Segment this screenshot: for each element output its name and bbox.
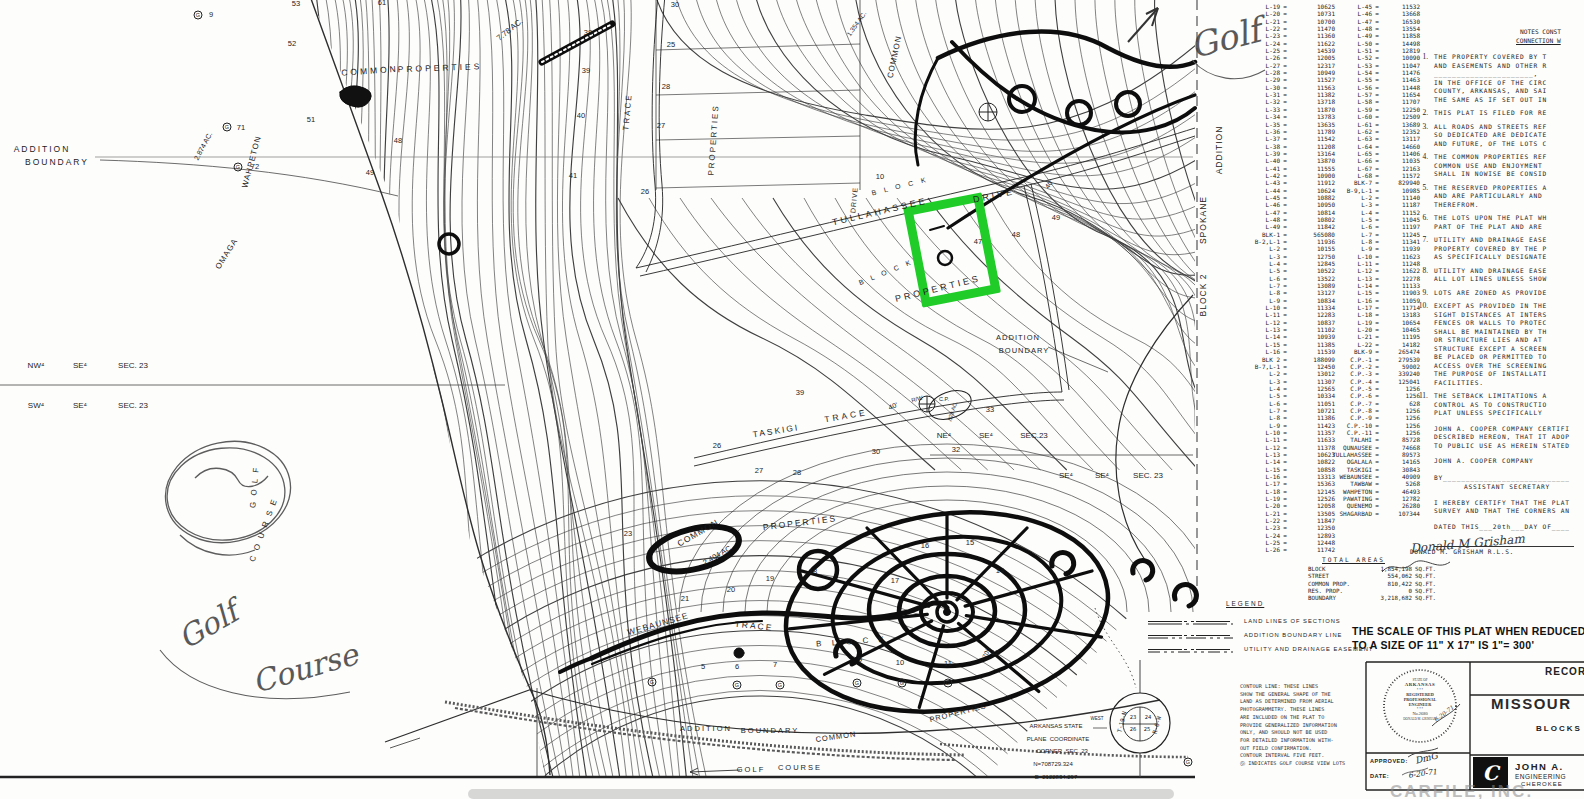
lot-id: QUENEMO (1326, 502, 1372, 509)
total-value: 0 (1360, 588, 1412, 595)
lot-id: L-25 (1236, 47, 1280, 54)
lot-area-value: 12893 (1290, 532, 1335, 539)
equals-sign: = (1280, 282, 1290, 289)
equals-sign: = (1372, 25, 1382, 32)
lot-id: L-60 (1326, 113, 1372, 120)
lot-id: BLK 2 (1236, 356, 1280, 363)
map-label: ADDITION (1215, 126, 1224, 175)
table-row: L-27 = 12317 (1236, 62, 1336, 69)
note-number: 4. (1404, 153, 1434, 179)
firm-division: ENGINEERING (1515, 773, 1566, 780)
lot-id: L-58 (1326, 98, 1372, 105)
equals-sign: = (1280, 223, 1290, 230)
map-label: 47 (974, 238, 982, 246)
lot-id: L-13 (1236, 326, 1280, 333)
surveyor-certification: I HEREBY CERTIFY THAT THE PLAT SURVEY AN… (1434, 499, 1584, 516)
lot-id: C.P.-7 (1326, 400, 1372, 407)
lot-id: L-5 (1326, 216, 1372, 223)
equals-sign: = (1372, 407, 1382, 414)
table-row: L-23 = 11360 (1236, 32, 1336, 39)
lot-id: L-21 (1236, 510, 1280, 517)
note-item: 1. THE PROPERTY COVERED BY T AND EASEMEN… (1404, 53, 1584, 104)
addition-boundary-lines (100, 0, 1193, 775)
table-row: L-21 = 13505 (1236, 510, 1336, 517)
note-number: 10. (1404, 302, 1434, 387)
lot-id: QUNAUSEE (1326, 444, 1372, 451)
map-label: 28 (662, 83, 670, 91)
equals-sign: = (1372, 458, 1382, 465)
lot-id: L-26 (1236, 54, 1280, 61)
lot-id: L-52 (1326, 54, 1372, 61)
equals-sign: = (1372, 143, 1382, 150)
lot-id: L-34 (1236, 113, 1280, 120)
equals-sign: = (1280, 510, 1290, 517)
equals-sign: = (1372, 106, 1382, 113)
table-row: BLK 2 = 188099 (1236, 356, 1336, 363)
equals-sign: = (1372, 495, 1382, 502)
map-label: 49 (1052, 214, 1060, 222)
equals-sign: = (1280, 150, 1290, 157)
total-value: 1,854,198 (1360, 566, 1412, 573)
lot-id: L-8 (1326, 238, 1372, 245)
lot-id: L-55 (1326, 76, 1372, 83)
lot-id: BLK-9 (1326, 348, 1372, 355)
table-row: L-44 = 10624 (1236, 187, 1336, 194)
map-label: 49 (366, 169, 374, 177)
lot-id: OGALALA (1326, 458, 1372, 465)
note-text: THIS PLAT IS FILED FOR RE (1434, 109, 1584, 118)
equals-sign: = (1280, 451, 1290, 458)
lot-id: L-9 (1326, 245, 1372, 252)
scan-watermark: CARFILE, INC. (1390, 782, 1533, 799)
map-label: E=2122834.297 (1035, 774, 1078, 780)
lot-id: L-44 (1236, 187, 1280, 194)
lot-id: L-35 (1236, 121, 1280, 128)
lot-id: L-3 (1326, 201, 1372, 208)
equals-sign: = (1372, 326, 1382, 333)
table-row: L-20 = 10731 (1236, 10, 1336, 17)
lot-id: L-7 (1236, 282, 1280, 289)
scale-note-line2: TO A SIZE OF 11" X 17" IS 1"= 300' (1352, 638, 1584, 652)
table-row: L-9 = 10834 (1236, 297, 1336, 304)
table-row: L-7 = 13089 (1236, 282, 1336, 289)
note-text: THE COMMON PROPERTIES REF COMMON USE AND… (1434, 153, 1584, 179)
equals-sign: = (1372, 260, 1382, 267)
lot-id: L-20 (1326, 326, 1372, 333)
map-label: 25 (1144, 727, 1151, 733)
table-row: L-12 = 10837 (1236, 319, 1336, 326)
lot-area-value: 11847 (1290, 517, 1335, 524)
legend-row: UTILITY AND DRAINAGE EASEMENT (1148, 642, 1378, 656)
equals-sign: = (1372, 333, 1382, 340)
equals-sign: = (1280, 135, 1290, 142)
equals-sign: = (1280, 480, 1290, 487)
lot-id: L-26 (1236, 546, 1280, 553)
equals-sign: = (1280, 502, 1290, 509)
equals-sign: = (1372, 451, 1382, 458)
equals-sign: = (1372, 10, 1382, 17)
lot-id: L-48 (1236, 216, 1280, 223)
note-text: THE PROPERTY COVERED BY T AND EASEMENTS … (1434, 53, 1584, 104)
lot-id: L-31 (1236, 91, 1280, 98)
legend-line-sample (1148, 635, 1236, 636)
golf-view-lot-icon: G (234, 163, 243, 172)
table-row: L-21 = 10700 (1236, 18, 1336, 25)
equals-sign: = (1372, 172, 1382, 179)
by-signature-line: BY____________________________ (1434, 474, 1584, 483)
note-number: 7. (1404, 236, 1434, 262)
table-row: L-23 = 12350 (1236, 524, 1336, 531)
table-row: L-41 = 11555 (1236, 165, 1336, 172)
lot-id: L-63 (1326, 135, 1372, 142)
legend: LEGEND LAND LINES OF SECTIONS ADDITION B… (1148, 600, 1378, 656)
table-row: L-33 = 11870 (1236, 106, 1336, 113)
notes-heading: NOTES CONST (1520, 28, 1584, 37)
company-certification: JOHN A. COOPER COMPANY CERTIFI DESCRIBED… (1434, 425, 1584, 451)
lot-id: L-36 (1236, 128, 1280, 135)
equals-sign: = (1280, 84, 1290, 91)
note-number: 8. (1404, 267, 1434, 284)
equals-sign: = (1280, 187, 1290, 194)
map-label: 25 (667, 41, 675, 49)
map-label: 51 (307, 116, 315, 124)
lot-id: TAWBAW (1326, 480, 1372, 487)
equals-sign: = (1372, 179, 1382, 186)
lot-id: L-23 (1236, 32, 1280, 39)
equals-sign: = (1372, 267, 1382, 274)
equals-sign: = (1372, 502, 1382, 509)
equals-sign: = (1280, 253, 1290, 260)
table-row: L-25 = 14539 (1236, 47, 1336, 54)
table-row: L-2 = 13012 (1236, 370, 1336, 377)
equals-sign: = (1280, 216, 1290, 223)
lot-id: L-4 (1236, 385, 1280, 392)
total-unit: SQ.FT. (1412, 573, 1441, 580)
equals-sign: = (1280, 165, 1290, 172)
lot-id: L-10 (1236, 429, 1280, 436)
lot-id: SHAGARBAD (1326, 510, 1372, 517)
lot-id: L-19 (1326, 319, 1372, 326)
firm-name: JOHN A. (1515, 761, 1564, 772)
equals-sign: = (1372, 209, 1382, 216)
legend-label: LAND LINES OF SECTIONS (1244, 618, 1341, 624)
table-row: L-15 = 11385 (1236, 341, 1336, 348)
table-row: L-26 = 12005 (1236, 54, 1336, 61)
lot-id: L-32 (1236, 98, 1280, 105)
map-label: WEST (1091, 717, 1104, 722)
total-label: COMMON PROP. (1308, 581, 1360, 588)
map-label: NW⁴ (28, 362, 45, 370)
table-row: B-2,L-1 = 11936 (1236, 238, 1336, 245)
equals-sign: = (1372, 223, 1382, 230)
equals-sign: = (1372, 348, 1382, 355)
map-label: 11 (944, 660, 952, 668)
lot-id: C.P.-3 (1326, 370, 1372, 377)
table-row: L-9 = 11423 (1236, 422, 1336, 429)
table-row: L-11 = 12283 (1236, 311, 1336, 318)
equals-sign: = (1280, 172, 1290, 179)
equals-sign: = (1280, 121, 1290, 128)
lot-id: L-13 (1236, 451, 1280, 458)
table-row: L-40 = 13870 (1236, 157, 1336, 164)
table-row: L-38 = 11208 (1236, 143, 1336, 150)
table-row: L-20 = 12058 (1236, 502, 1336, 509)
notes-subheading: CONNECTION W (1516, 37, 1584, 46)
equals-sign: = (1372, 392, 1382, 399)
lot-id: L-20 (1236, 502, 1280, 509)
lot-id: L-16 (1326, 297, 1372, 304)
equals-sign: = (1280, 231, 1290, 238)
map-label: N=708729.324 (1033, 761, 1073, 767)
table-row: L-49 = 11842 (1236, 223, 1336, 230)
golf-view-lot-icon: G (898, 679, 907, 688)
lot-id: L-67 (1326, 165, 1372, 172)
table-row: L-42 = 10900 (1236, 172, 1336, 179)
lot-id: L-29 (1236, 76, 1280, 83)
lot-id: L-10 (1326, 253, 1372, 260)
lot-id: L-2 (1236, 370, 1280, 377)
lot-id: L-50 (1326, 40, 1372, 47)
equals-sign: = (1280, 113, 1290, 120)
lot-id: B-2,L-1 (1236, 238, 1280, 245)
lot-id: TALAHI (1326, 436, 1372, 443)
equals-sign: = (1372, 98, 1382, 105)
total-unit: SQ.FT. (1412, 566, 1441, 573)
total-areas-row: BLOCK 1,854,198 SQ.FT. (1308, 566, 1442, 573)
map-label: 9 (858, 656, 862, 664)
equals-sign: = (1372, 113, 1382, 120)
equals-sign: = (1372, 245, 1382, 252)
lot-id: L-22 (1326, 341, 1372, 348)
note-item: 6. THE LOTS UPON THE PLAT WH PART OF THE… (1404, 214, 1584, 231)
lot-id: L-5 (1236, 392, 1280, 399)
lot-id: L-14 (1236, 333, 1280, 340)
table-row: L-47 = 10814 (1236, 209, 1336, 216)
equals-sign: = (1372, 121, 1382, 128)
lot-id: L-57 (1326, 91, 1372, 98)
table-row: L-19 = 12526 (1236, 495, 1336, 502)
lot-id: L-6 (1236, 400, 1280, 407)
equals-sign: = (1280, 385, 1290, 392)
lot-id: L-37 (1236, 135, 1280, 142)
note-item: 2. THIS PLAT IS FILED FOR RE (1404, 109, 1584, 118)
equals-sign: = (1280, 209, 1290, 216)
map-label: SEC. 23 (118, 402, 148, 410)
lot-area-value: 12448 (1290, 539, 1335, 546)
lot-id: L-66 (1326, 157, 1372, 164)
equals-sign: = (1280, 260, 1290, 267)
table-row: L-2 = 10155 (1236, 245, 1336, 252)
map-label: SEC.23 (1020, 432, 1048, 440)
lot-id: L-10 (1236, 304, 1280, 311)
legend-line-sample (1148, 621, 1236, 622)
equals-sign: = (1280, 473, 1290, 480)
equals-sign: = (1280, 444, 1290, 451)
lot-id: L-9 (1236, 297, 1280, 304)
lot-id: L-27 (1236, 62, 1280, 69)
equals-sign: = (1280, 341, 1290, 348)
note-text: ALL ROADS AND STREETS REF SO DEDICATED A… (1434, 123, 1584, 149)
lot-id: C.P.-9 (1326, 414, 1372, 421)
note-item: 8. UTILITY AND DRAINAGE EASE ALL LOT LIN… (1404, 267, 1584, 284)
lot-id: L-14 (1236, 458, 1280, 465)
lot-id: L-46 (1326, 10, 1372, 17)
map-label: 38 (584, 29, 592, 37)
lot-area-value: 11742 (1290, 546, 1335, 553)
table-row: L-25 = 12448 (1236, 539, 1336, 546)
legend-heading: LEGEND (1226, 600, 1378, 607)
note-item: 3. ALL ROADS AND STREETS REF SO DEDICATE… (1404, 123, 1584, 149)
lot-id: L-33 (1236, 106, 1280, 113)
lot-id: L-22 (1236, 517, 1280, 524)
equals-sign: = (1372, 356, 1382, 363)
map-label: 53 (292, 0, 300, 8)
equals-sign: = (1280, 311, 1290, 318)
lot-id: L-46 (1236, 201, 1280, 208)
equals-sign: = (1372, 76, 1382, 83)
lot-area-value: 13668 (1382, 10, 1420, 17)
map-label: 61 (378, 0, 386, 7)
map-label: SE⁴ (1059, 472, 1073, 480)
golf-view-lot-icon: G (648, 678, 657, 687)
lot-id: L-6 (1326, 223, 1372, 230)
equals-sign: = (1372, 91, 1382, 98)
equals-sign: = (1280, 422, 1290, 429)
lot-area-value: 12350 (1290, 524, 1335, 531)
note-item: 4. THE COMMON PROPERTIES REF COMMON USE … (1404, 153, 1584, 179)
total-unit: SQ.FT. (1412, 581, 1441, 588)
equals-sign: = (1372, 289, 1382, 296)
lot-id: B-7,L-1 (1236, 363, 1280, 370)
map-label: SE⁴ (73, 362, 87, 370)
lot-id: L-38 (1236, 143, 1280, 150)
table-row: L-28 = 10949 (1236, 69, 1336, 76)
scale-note-line1: THE SCALE OF THIS PLAT WHEN REDUCED (1352, 624, 1584, 638)
total-value: 810,422 (1360, 581, 1412, 588)
equals-sign: = (1372, 128, 1382, 135)
map-label: 28 (793, 469, 801, 477)
map-label: 19 (766, 575, 774, 583)
equals-sign: = (1280, 62, 1290, 69)
table-row: L-35 = 13635 (1236, 121, 1336, 128)
map-label: 39 (796, 389, 804, 397)
lot-id: L-7 (1326, 231, 1372, 238)
table-row: L-32 = 13718 (1236, 98, 1336, 105)
note-item: 10. EXCEPT AS PROVIDED IN THE SIGHT DIST… (1404, 302, 1584, 387)
equals-sign: = (1280, 98, 1290, 105)
equals-sign: = (1372, 378, 1382, 385)
map-label: 9 (209, 11, 213, 19)
lot-id: L-9 (1236, 422, 1280, 429)
lot-id: L-12 (1326, 267, 1372, 274)
table-row: L-10 = 11357 (1236, 429, 1336, 436)
table-row: L-30 = 11563 (1236, 84, 1336, 91)
golf-view-lot-icon: G (853, 679, 862, 688)
equals-sign: = (1372, 436, 1382, 443)
table-row: L-22 = 11847 (1236, 517, 1336, 524)
lot-id: L-5 (1236, 267, 1280, 274)
lot-id: L-53 (1326, 62, 1372, 69)
equals-sign: = (1280, 429, 1290, 436)
map-label: 20 (727, 586, 735, 594)
lot-id: L-11 (1326, 260, 1372, 267)
equals-sign: = (1372, 216, 1382, 223)
lot-id: WEBAUNSEE (1326, 473, 1372, 480)
note-text: THE SETBACK LIMITATIONS A CONTROL AS TO … (1434, 392, 1584, 418)
lot-id: L-12 (1236, 444, 1280, 451)
table-row: L-4 = 12565 (1236, 385, 1336, 392)
total-label: BLOCK (1308, 566, 1360, 573)
total-areas-row: STREET 554,062 SQ.FT. (1308, 573, 1442, 580)
map-label: 48 (1012, 231, 1020, 239)
map-label: 71 (237, 124, 245, 132)
table-row: L-5 = 10522 (1236, 267, 1336, 274)
equals-sign: = (1372, 135, 1382, 142)
lot-id: L-42 (1236, 172, 1280, 179)
map-label: CORNER SEC. 23 (1036, 748, 1088, 754)
equals-sign: = (1372, 40, 1382, 47)
table-row: L-34 = 13783 (1236, 113, 1336, 120)
lot-id: L-65 (1326, 150, 1372, 157)
equals-sign: = (1280, 32, 1290, 39)
equals-sign: = (1372, 32, 1382, 39)
table-row: L-31 = 11382 (1236, 91, 1336, 98)
total-label: RES. PROP. (1308, 588, 1360, 595)
lot-id: L-2 (1326, 194, 1372, 201)
equals-sign: = (1280, 76, 1290, 83)
table-row: L-11 = 11633 (1236, 436, 1336, 443)
lot-id: C.P.-4 (1326, 378, 1372, 385)
equals-sign: = (1280, 238, 1290, 245)
lot-id: C.P.-11 (1326, 429, 1372, 436)
lot-id: L-14 (1326, 282, 1372, 289)
note-text: THE LOTS UPON THE PLAT WH PART OF THE PL… (1434, 214, 1584, 231)
map-label: 41 (569, 172, 577, 180)
equals-sign: = (1372, 304, 1382, 311)
equals-sign: = (1280, 436, 1290, 443)
map-label: 39 (582, 67, 590, 75)
north-arrow (1128, 8, 1158, 42)
equals-sign: = (1372, 18, 1382, 25)
lot-area-value: 11532 (1382, 3, 1420, 10)
equals-sign: = (1280, 414, 1290, 421)
table-row: L-47 = 16530 (1326, 18, 1422, 25)
equals-sign: = (1372, 201, 1382, 208)
equals-sign: = (1372, 231, 1382, 238)
equals-sign: = (1372, 238, 1382, 245)
equals-sign: = (1372, 62, 1382, 69)
golf-view-lot-icon: G (776, 681, 785, 690)
table-row: L-13 = 11102 (1236, 326, 1336, 333)
table-row: L-24 = 11622 (1236, 40, 1336, 47)
equals-sign: = (1280, 106, 1290, 113)
map-label: 40 (577, 112, 585, 120)
table-row: L-39 = 13164 (1236, 150, 1336, 157)
lot-id: L-16 (1236, 348, 1280, 355)
note-item: 7. UTILITY AND DRAINAGE EASE PROPERTY CO… (1404, 236, 1584, 262)
note-item: 11. THE SETBACK LIMITATIONS A CONTROL AS… (1404, 392, 1584, 418)
lot-id: L-54 (1326, 69, 1372, 76)
lot-id: L-6 (1236, 275, 1280, 282)
map-label: 23 (1130, 715, 1137, 721)
lot-id: L-51 (1326, 47, 1372, 54)
equals-sign: = (1280, 356, 1290, 363)
golf-view-lot-icon: G (944, 679, 953, 688)
map-label: SE⁴ (73, 402, 87, 410)
total-areas-block: TOTAL AREAS BLOCK 1,854,198 SQ.FT. STREE… (1308, 556, 1442, 602)
equals-sign: = (1372, 341, 1382, 348)
equals-sign: = (1372, 69, 1382, 76)
